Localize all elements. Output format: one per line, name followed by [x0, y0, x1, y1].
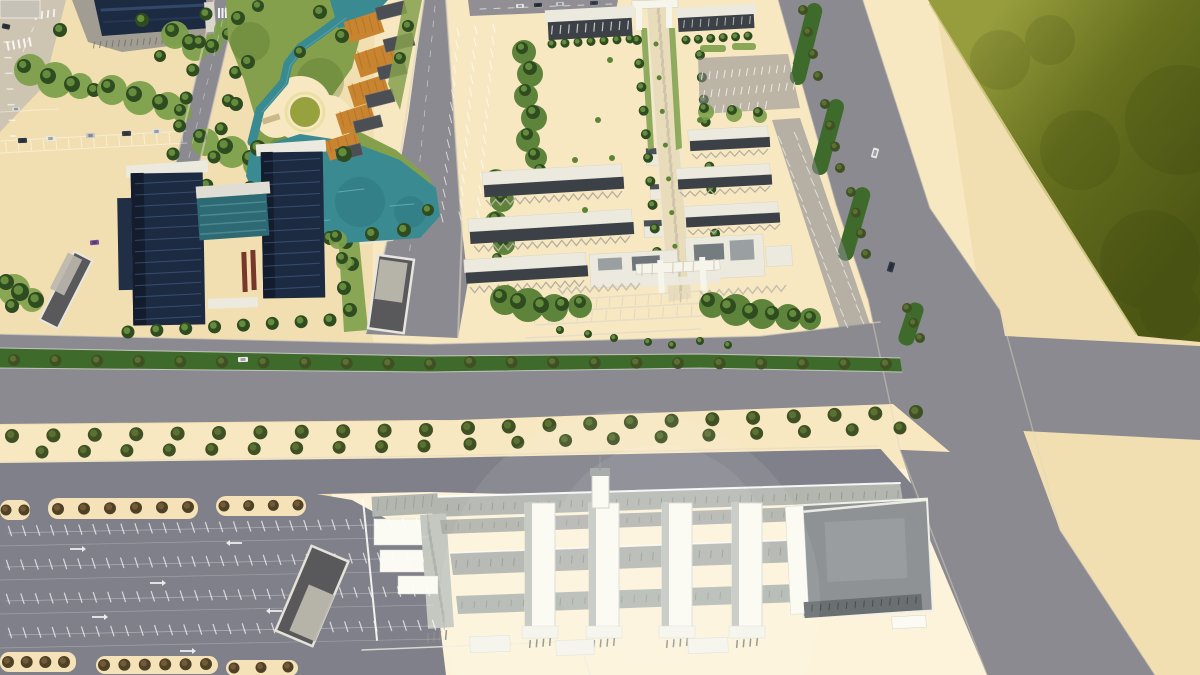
parked-car [18, 138, 27, 143]
sun-glare [550, 445, 770, 665]
roof-dark-panel [598, 257, 623, 270]
aerial-scene[interactable] [0, 0, 1200, 675]
tower-annex [117, 198, 133, 290]
parked-car [556, 2, 564, 6]
parked-car [46, 136, 55, 141]
campus-small-building [765, 245, 792, 266]
roof-dark-panel [694, 243, 725, 261]
parking-island [48, 498, 198, 519]
car [90, 240, 99, 246]
roof-dark-panel [729, 239, 754, 260]
tower-shade-face [131, 173, 147, 325]
road-a-east-arm [1005, 336, 1200, 440]
parked-car [590, 1, 598, 5]
hospital-se-block [892, 615, 927, 629]
parked-car [534, 3, 542, 7]
ramp-floor [374, 259, 407, 303]
car [238, 357, 248, 362]
hospital-wing [398, 576, 438, 594]
tower-entry-canopy [208, 297, 258, 309]
parking-island [96, 656, 218, 674]
parked-car [12, 107, 20, 111]
corner-building [0, 0, 40, 18]
parked-car [86, 133, 95, 138]
hospital-wing [380, 550, 426, 572]
roof-inner [824, 518, 907, 582]
parked-car [516, 4, 524, 8]
hedge [732, 43, 756, 50]
gate-post [636, 4, 642, 30]
clearing-green [290, 97, 320, 127]
parked-car [122, 131, 131, 136]
parked-car [152, 129, 161, 134]
render-viewport[interactable] [0, 0, 1200, 675]
hedge [700, 45, 726, 52]
gate-post [666, 2, 672, 28]
